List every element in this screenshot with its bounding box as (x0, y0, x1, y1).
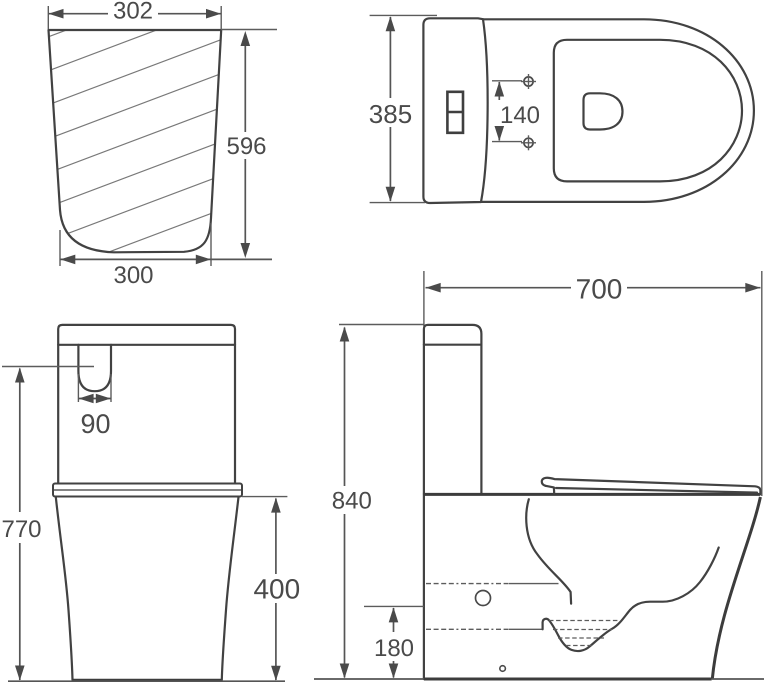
svg-text:302: 302 (113, 0, 153, 25)
svg-text:90: 90 (80, 409, 110, 439)
svg-text:400: 400 (253, 574, 300, 605)
svg-text:300: 300 (113, 262, 153, 289)
svg-text:140: 140 (500, 102, 540, 129)
svg-text:180: 180 (374, 635, 414, 662)
svg-text:770: 770 (1, 516, 41, 543)
svg-text:700: 700 (576, 274, 623, 305)
svg-text:840: 840 (332, 488, 372, 515)
svg-text:596: 596 (226, 133, 266, 160)
svg-text:385: 385 (369, 99, 412, 129)
